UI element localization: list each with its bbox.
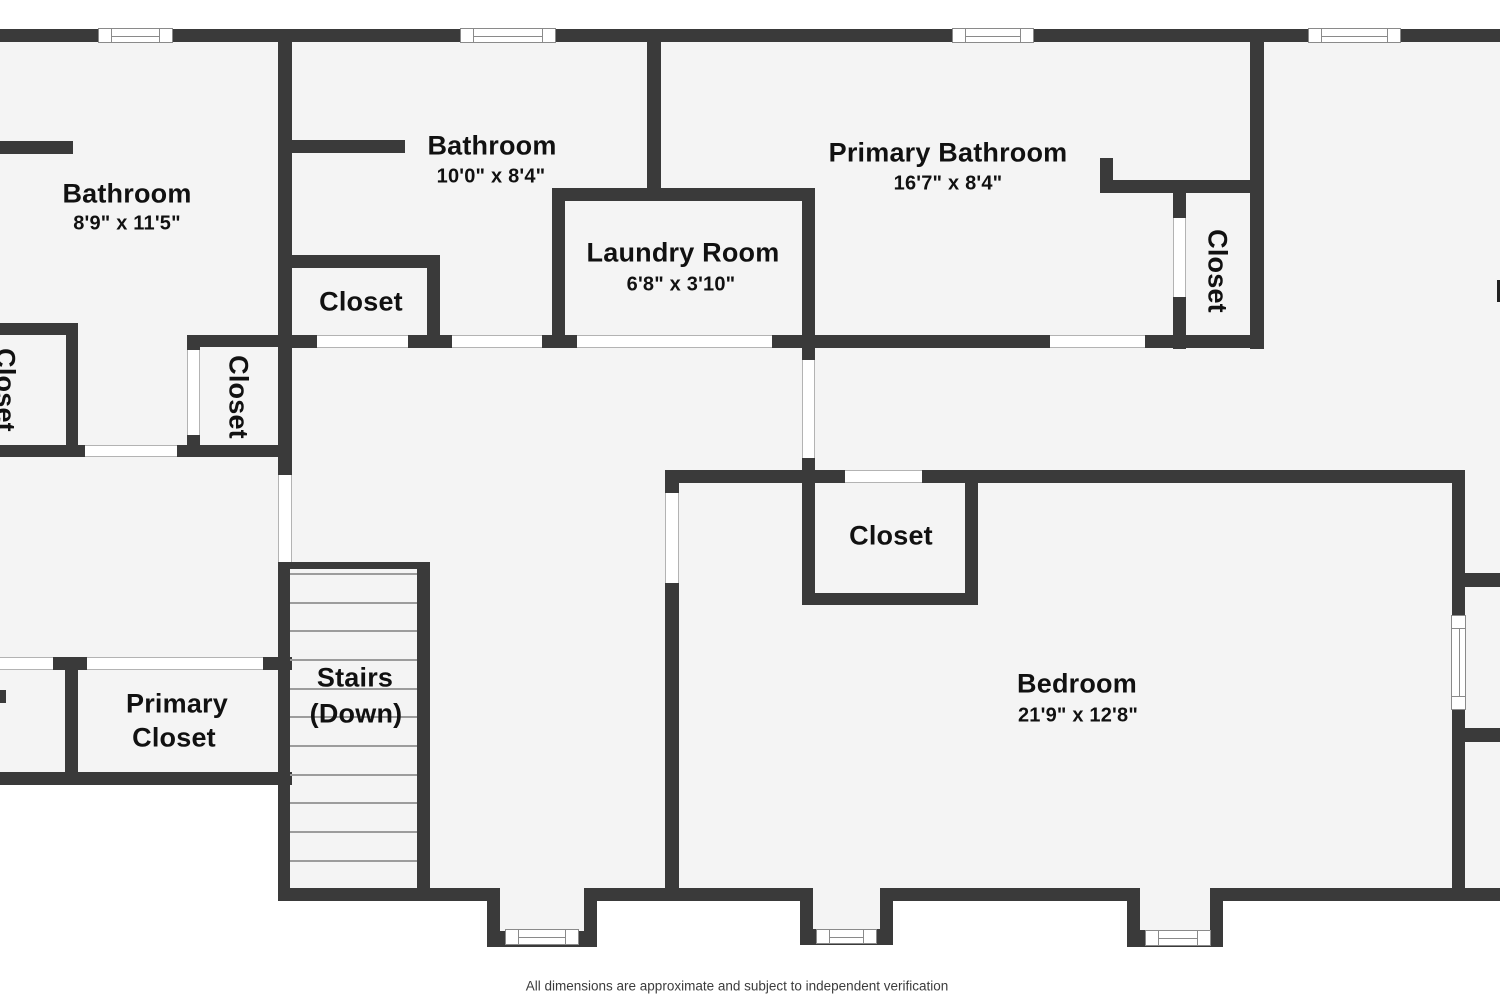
wall bbox=[187, 335, 200, 350]
wall bbox=[66, 335, 78, 445]
wall bbox=[278, 41, 292, 347]
door-opening bbox=[187, 350, 200, 435]
bay-floor bbox=[500, 888, 584, 931]
wall bbox=[665, 583, 679, 901]
room-dimensions-bathroom-left: 8'9" x 11'5" bbox=[73, 213, 181, 236]
door-opening bbox=[317, 335, 408, 348]
room-dimensions-bedroom: 21'9" x 12'8" bbox=[1018, 705, 1138, 728]
stair-tread bbox=[290, 602, 417, 604]
door-opening bbox=[665, 493, 679, 583]
door-opening bbox=[1173, 218, 1186, 297]
wall-stub bbox=[292, 140, 405, 153]
wall bbox=[1452, 708, 1465, 901]
wall bbox=[0, 445, 85, 457]
stair-tread bbox=[290, 831, 417, 833]
stair-tread bbox=[290, 630, 417, 632]
wall bbox=[1145, 335, 1264, 348]
door-opening bbox=[0, 657, 53, 670]
stair-tread bbox=[290, 745, 417, 747]
window bbox=[505, 929, 579, 945]
room-label-closet-bedroom: Closet bbox=[849, 521, 933, 552]
wall bbox=[53, 657, 87, 670]
door-opening bbox=[802, 360, 815, 458]
door-opening bbox=[452, 335, 542, 348]
wall bbox=[0, 323, 78, 335]
wall bbox=[552, 188, 815, 201]
wall-bottom-exterior bbox=[584, 888, 814, 901]
room-label-closet-primary-bath: Closet bbox=[1202, 229, 1233, 313]
wall bbox=[1452, 470, 1465, 617]
door-opening bbox=[845, 470, 922, 483]
wall bbox=[65, 670, 78, 772]
wall bbox=[647, 41, 661, 200]
door-opening bbox=[577, 335, 772, 348]
bay-floor bbox=[1140, 888, 1210, 930]
room-dimensions-laundry: 6'8" x 3'10" bbox=[627, 274, 736, 297]
stairs-left-wall bbox=[278, 562, 290, 901]
disclaimer-text: All dimensions are approximate and subje… bbox=[526, 979, 949, 994]
wall bbox=[552, 188, 565, 348]
room-label-primary-bathroom: Primary Bathroom bbox=[829, 138, 1068, 169]
room-label-primary-closet-line1: Primary bbox=[126, 689, 228, 720]
wall bbox=[665, 470, 679, 493]
wall-top-exterior bbox=[0, 29, 1500, 42]
room-label-closet-left-edge: Closet bbox=[0, 348, 21, 432]
wall bbox=[1173, 193, 1186, 218]
window bbox=[1451, 615, 1466, 710]
room-label-bathroom-top: Bathroom bbox=[427, 131, 556, 162]
room-label-laundry: Laundry Room bbox=[587, 238, 780, 269]
wall bbox=[1100, 180, 1264, 193]
room-label-primary-closet-line2: Closet bbox=[132, 723, 216, 754]
wall bbox=[802, 188, 815, 360]
wall bbox=[1173, 297, 1186, 349]
wall-stub bbox=[1465, 728, 1500, 742]
wall-bottom-exterior bbox=[880, 888, 1140, 901]
wall bbox=[1250, 41, 1264, 349]
door-opening bbox=[85, 445, 177, 457]
window bbox=[816, 929, 877, 944]
room-label-closet-top-middle: Closet bbox=[319, 287, 403, 318]
room-label-stairs: Stairs bbox=[317, 663, 393, 694]
stair-tread bbox=[290, 860, 417, 862]
wall bbox=[177, 445, 292, 457]
wall bbox=[802, 482, 815, 605]
window bbox=[1145, 930, 1211, 946]
wall-stub bbox=[0, 690, 6, 703]
window bbox=[460, 28, 556, 43]
room-label-bedroom: Bedroom bbox=[1017, 669, 1137, 700]
window bbox=[1308, 28, 1401, 43]
wall bbox=[278, 347, 292, 475]
bay-floor bbox=[813, 888, 880, 929]
door-opening bbox=[87, 657, 263, 670]
room-label-stairs-down: (Down) bbox=[310, 699, 403, 730]
window bbox=[98, 28, 173, 43]
wall bbox=[0, 772, 292, 785]
wall bbox=[187, 335, 292, 347]
window bbox=[952, 28, 1034, 43]
stairs-right-wall bbox=[417, 562, 430, 901]
room-dimensions-primary-bathroom: 16'7" x 8'4" bbox=[894, 173, 1003, 196]
room-dimensions-bathroom-top: 10'0" x 8'4" bbox=[437, 166, 546, 189]
door-opening bbox=[1050, 335, 1145, 348]
wall bbox=[290, 255, 440, 268]
floor bbox=[278, 785, 1500, 888]
door-opening bbox=[278, 475, 292, 562]
stair-tread bbox=[290, 573, 417, 575]
stair-tread bbox=[290, 774, 417, 776]
wall bbox=[965, 482, 978, 605]
wall-stub bbox=[1465, 573, 1500, 587]
wall bbox=[665, 470, 845, 483]
floor-plan: Bathroom 8'9" x 11'5" Bathroom 10'0" x 8… bbox=[0, 0, 1500, 1000]
stair-tread bbox=[290, 802, 417, 804]
stair-tread bbox=[290, 659, 417, 661]
wall-stub bbox=[0, 141, 73, 154]
wall bbox=[922, 470, 1463, 483]
stairs-top-wall bbox=[278, 562, 430, 569]
room-label-closet-middle: Closet bbox=[223, 355, 254, 439]
room-label-bathroom-left: Bathroom bbox=[62, 179, 191, 210]
wall-bottom-exterior bbox=[278, 888, 500, 901]
wall bbox=[802, 593, 978, 605]
wall bbox=[408, 335, 452, 348]
wall bbox=[263, 657, 292, 670]
